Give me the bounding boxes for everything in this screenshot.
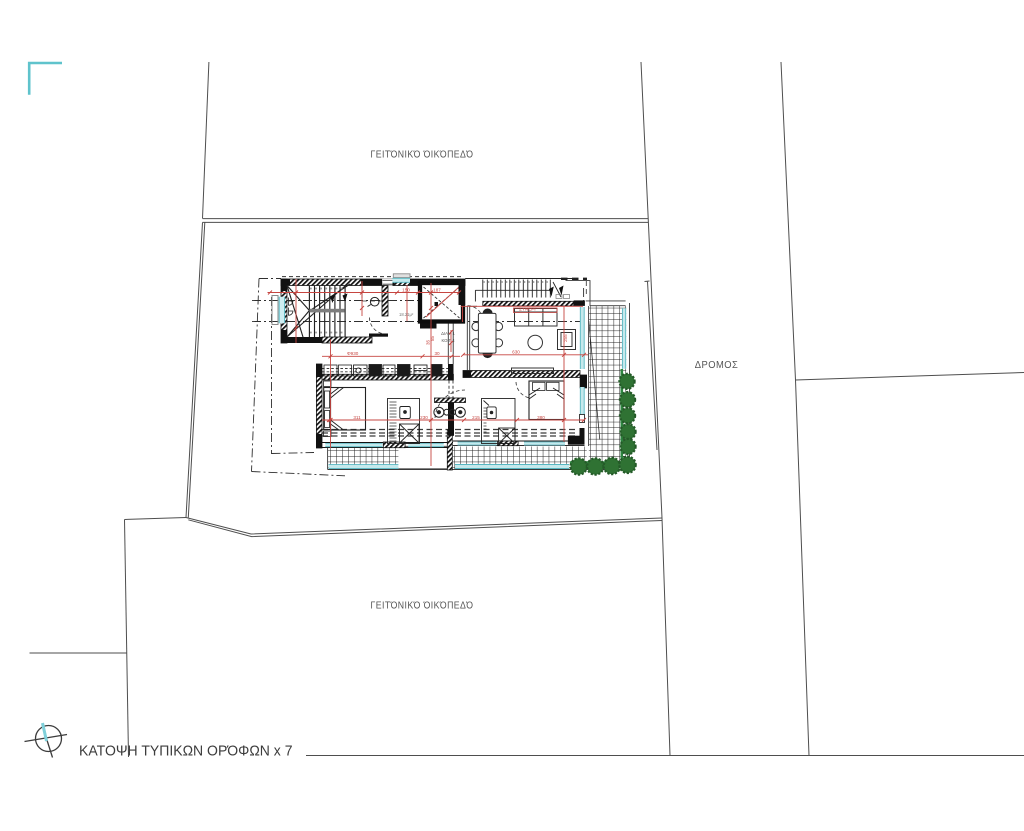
svg-text:150: 150 — [402, 287, 410, 292]
svg-text:230: 230 — [420, 415, 428, 420]
svg-text:630: 630 — [512, 350, 520, 355]
svg-text:215: 215 — [472, 415, 480, 420]
svg-text:380: 380 — [537, 415, 545, 420]
svg-text:30: 30 — [435, 351, 441, 356]
svg-text:ΓΕΙΤΌΝΙΚΌ ΌΙΚΌΠΕΔΌ: ΓΕΙΤΌΝΙΚΌ ΌΙΚΌΠΕΔΌ — [371, 149, 474, 160]
svg-text:ΣΥΝΕΡΓ: ΣΥΝΕΡΓ — [519, 307, 537, 312]
svg-text:ΚΑΤΟΨΗ ΤΥΠΙΚΩΝ ΟΡΌΦΩΝ x 7: ΚΑΤΟΨΗ ΤΥΠΙΚΩΝ ΟΡΌΦΩΝ x 7 — [79, 744, 293, 760]
svg-text:ΓΕΙΤΌΝΙΚΌ ΌΙΚΌΠΕΔΌ: ΓΕΙΤΌΝΙΚΌ ΌΙΚΌΠΕΔΌ — [371, 600, 474, 611]
svg-text:35: 35 — [426, 339, 431, 345]
svg-text:ΔΙΑΜ 1: ΔΙΑΜ 1 — [441, 331, 455, 336]
svg-text:ΔΡΟΜΟΣ: ΔΡΟΜΟΣ — [695, 360, 739, 371]
svg-text:255: 255 — [563, 334, 568, 342]
svg-text:311: 311 — [353, 415, 361, 420]
svg-text:187: 187 — [433, 287, 441, 292]
svg-text:85: 85 — [430, 335, 435, 341]
svg-text:18.21μ²: 18.21μ² — [399, 312, 414, 317]
svg-text:ΚΟΙΤ 4: ΚΟΙΤ 4 — [441, 338, 455, 343]
svg-text:Φ930: Φ930 — [347, 351, 359, 356]
